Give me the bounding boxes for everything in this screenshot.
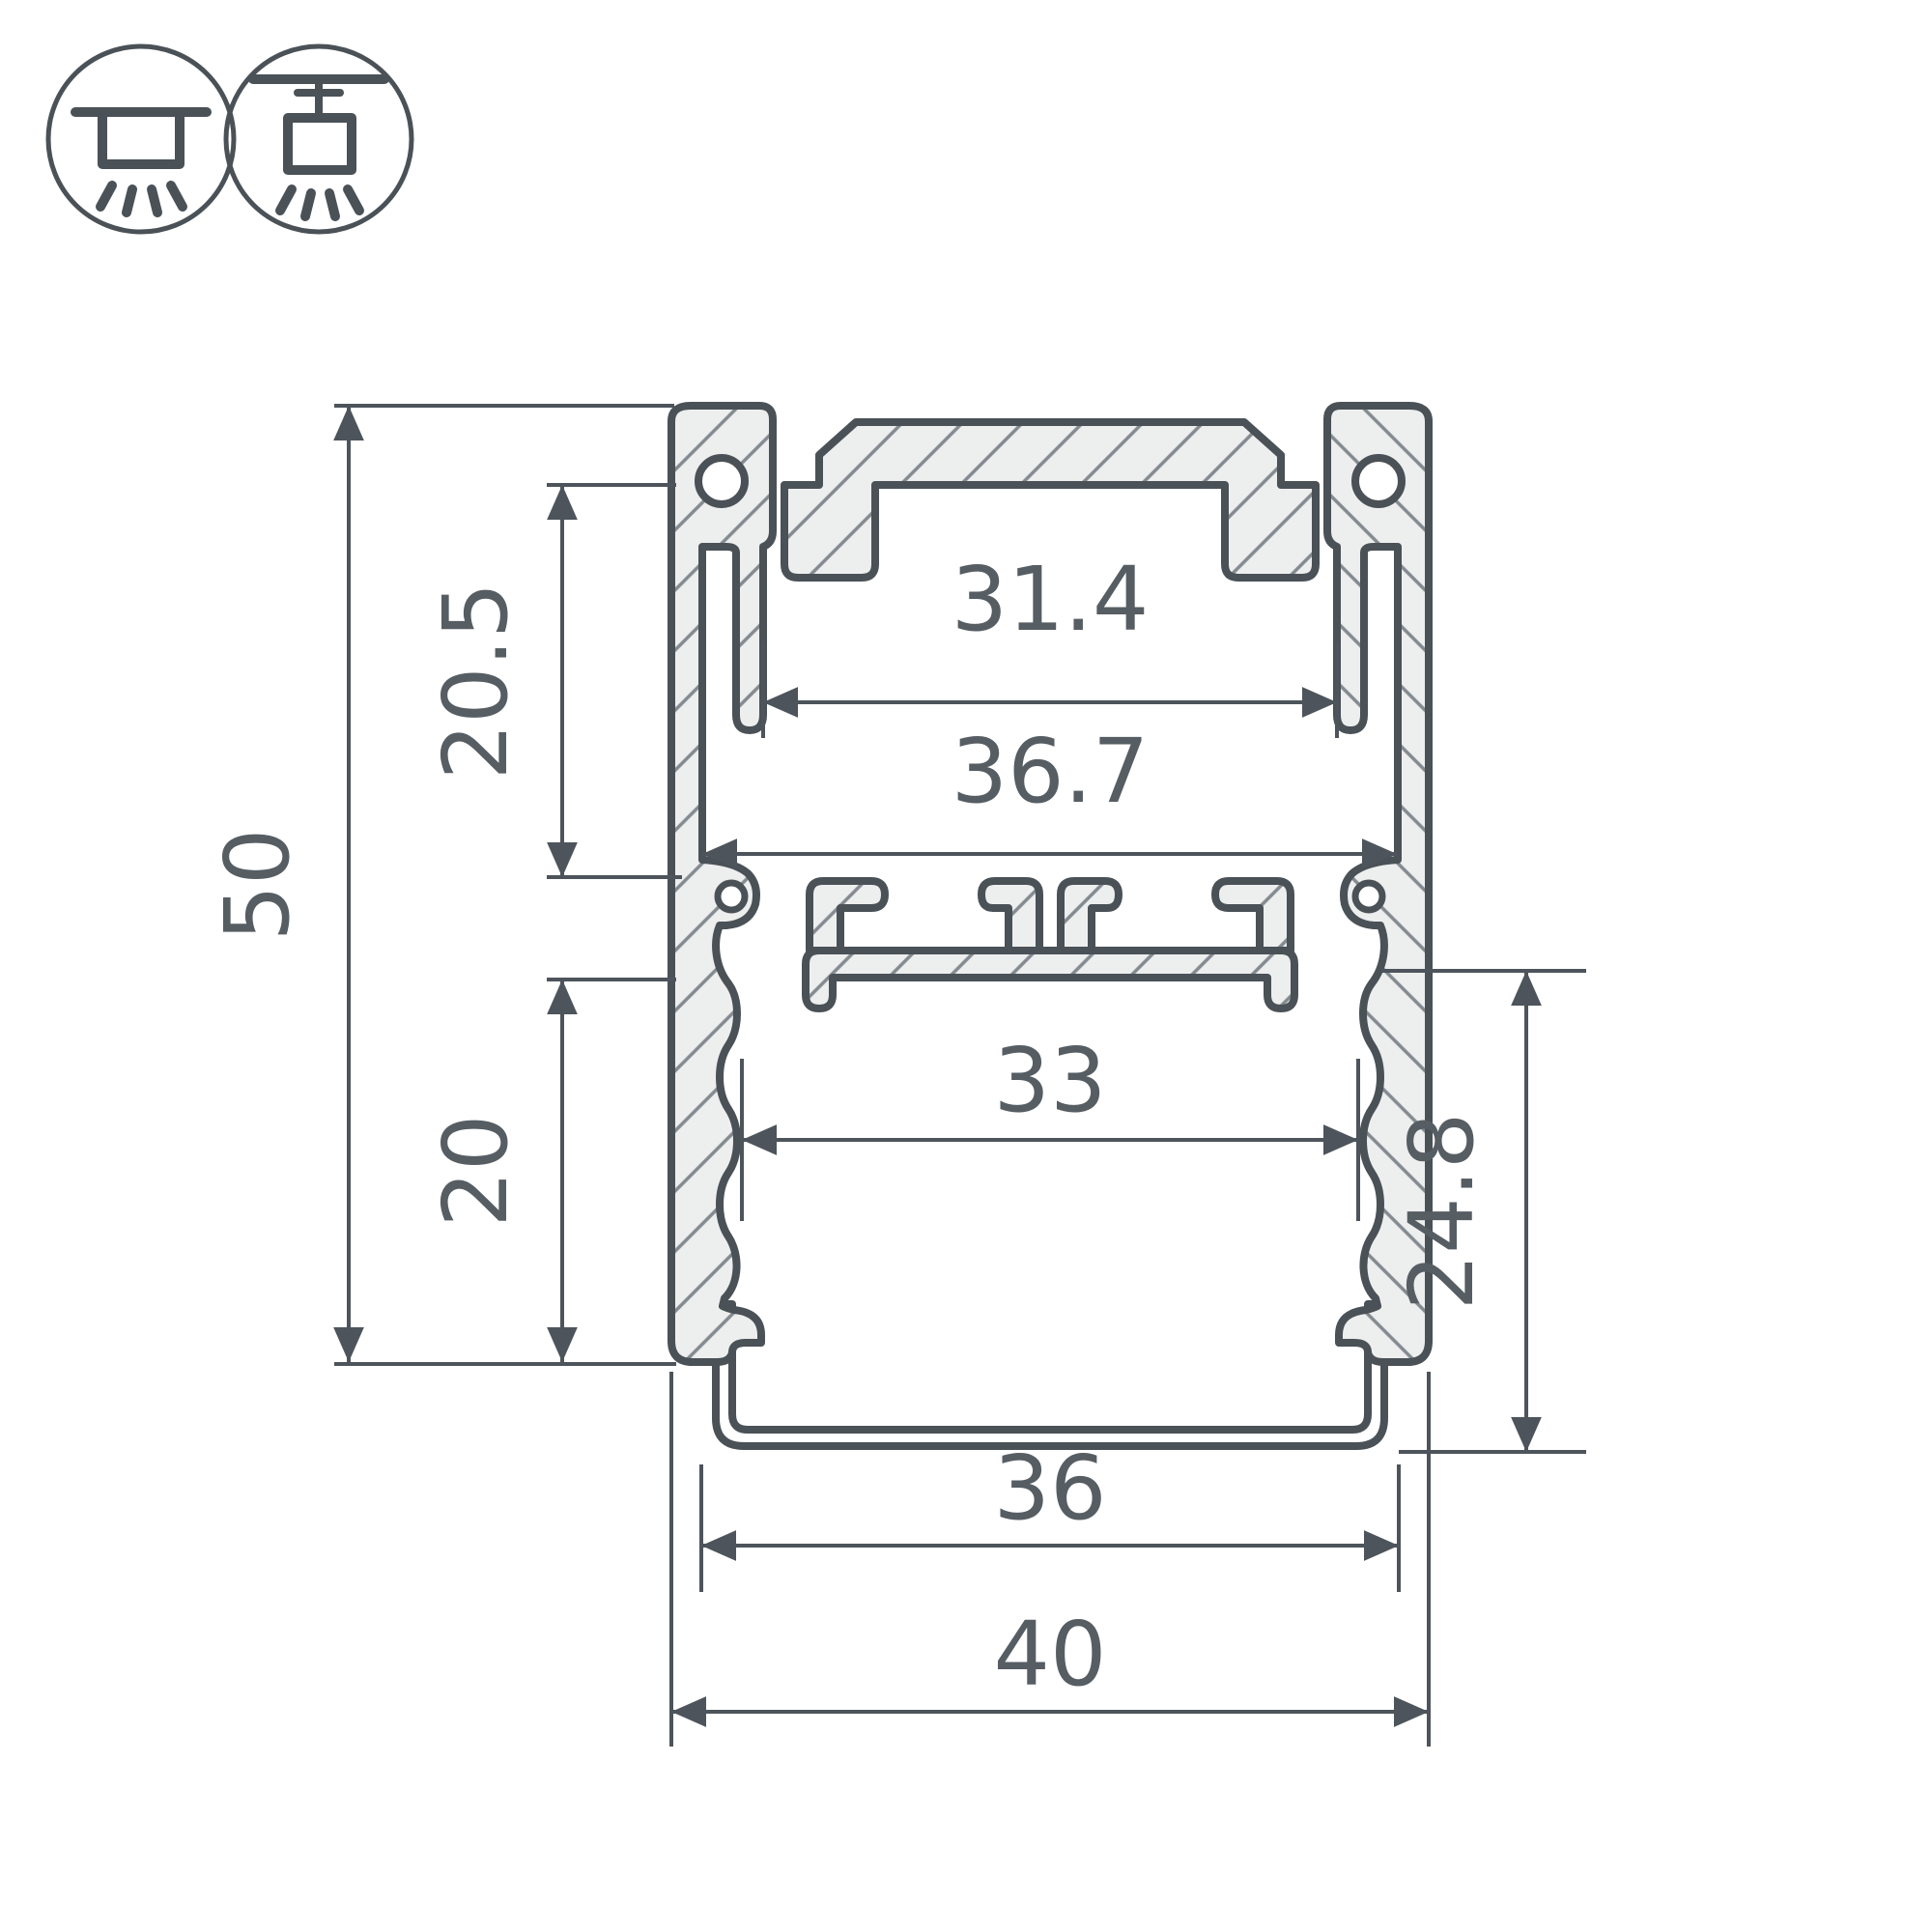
light-rays bbox=[100, 185, 183, 213]
technical-drawing-page: 50 20.5 20 24.8 31.4 36.7 33 36 40 bbox=[0, 0, 1932, 1932]
luminaire-box bbox=[288, 118, 352, 170]
diffuser-cover bbox=[716, 1304, 1384, 1446]
screw-port-notch bbox=[1355, 458, 1402, 504]
hook-pocket bbox=[1355, 883, 1382, 910]
profile-left-wall bbox=[671, 406, 773, 1362]
plate-tooth-right bbox=[1215, 881, 1291, 951]
dimension-label-33: 33 bbox=[993, 1029, 1106, 1132]
hook-pocket bbox=[718, 883, 745, 910]
light-rays bbox=[280, 189, 359, 216]
middle-mounting-plate bbox=[806, 881, 1294, 1009]
profile-drawing: 50 20.5 20 24.8 31.4 36.7 33 36 40 bbox=[0, 0, 1932, 1932]
dimension-label-40: 40 bbox=[993, 1603, 1106, 1706]
plate-tooth-left bbox=[810, 881, 885, 951]
dimension-labels: 50 20.5 20 24.8 31.4 36.7 33 36 40 bbox=[206, 548, 1493, 1706]
surface-mount-icon bbox=[48, 46, 234, 232]
dimension-label-20-5: 20.5 bbox=[424, 582, 527, 781]
dimension-label-20: 20 bbox=[424, 1114, 527, 1227]
dimension-label-36-7: 36.7 bbox=[952, 720, 1150, 823]
luminaire-box bbox=[102, 112, 180, 164]
dimension-label-50: 50 bbox=[206, 828, 309, 941]
plate-tooth-center-left bbox=[981, 881, 1039, 951]
plate-tooth-center-right bbox=[1061, 881, 1119, 951]
icon-circle bbox=[226, 46, 412, 232]
dimension-label-36: 36 bbox=[993, 1436, 1106, 1540]
pendant-mount-icon bbox=[226, 46, 412, 232]
plate-body bbox=[806, 951, 1294, 1009]
screw-port-notch bbox=[698, 458, 745, 504]
dimension-label-31-4: 31.4 bbox=[952, 548, 1150, 651]
dimension-label-24-8: 24.8 bbox=[1390, 1113, 1493, 1311]
icon-circle bbox=[48, 46, 234, 232]
